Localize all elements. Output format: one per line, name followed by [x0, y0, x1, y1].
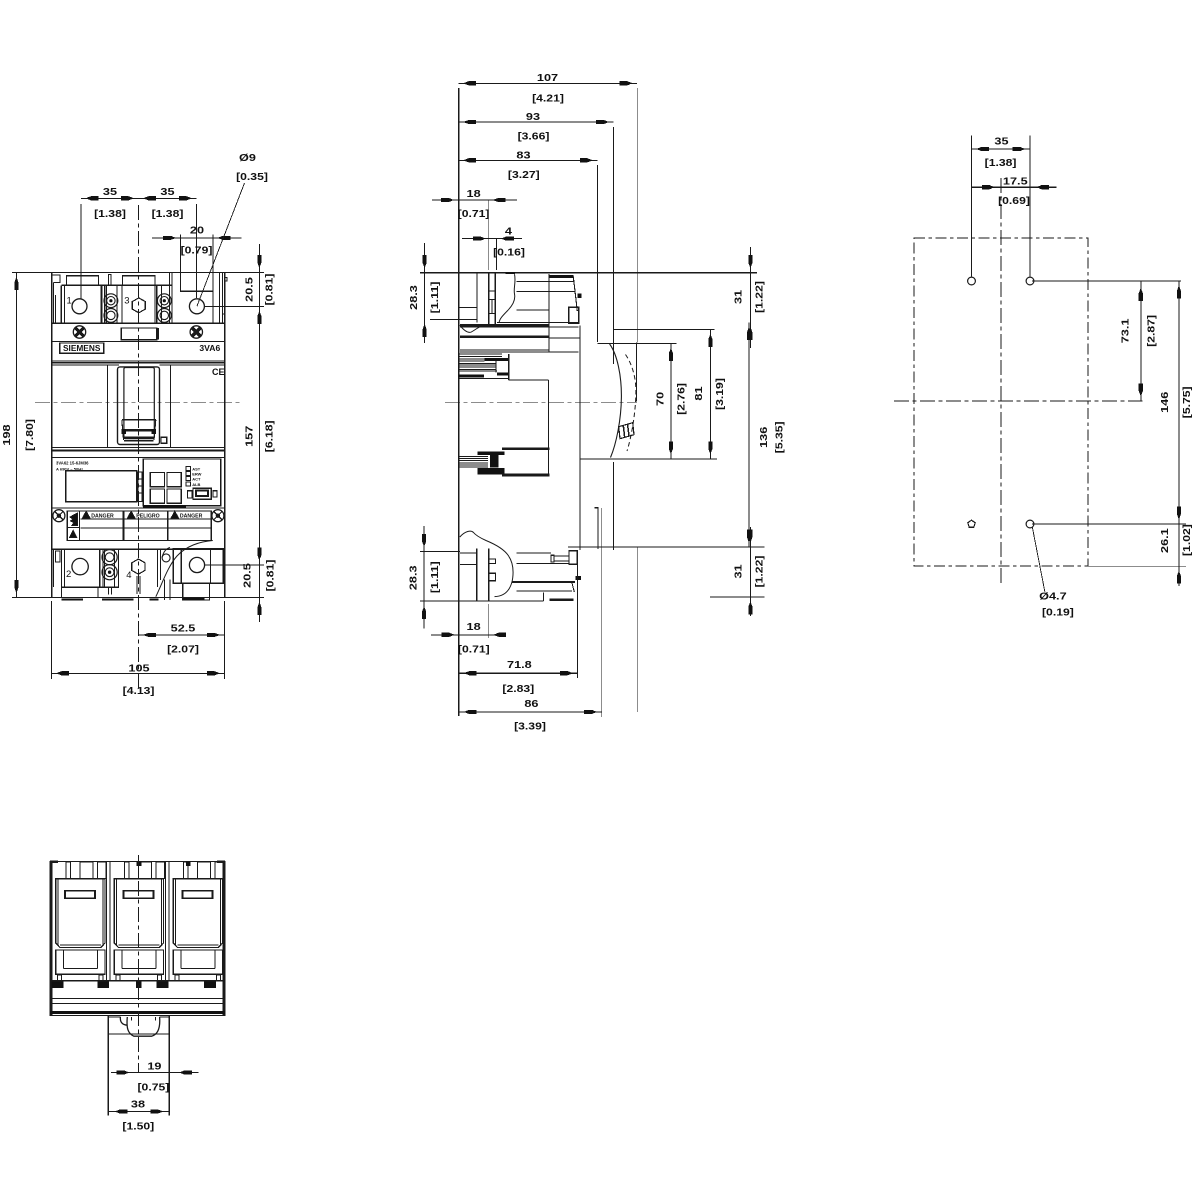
svg-text:[1.22]: [1.22]	[754, 556, 765, 588]
svg-text:35: 35	[160, 187, 175, 198]
svg-text:107: 107	[537, 73, 559, 84]
svg-text:136: 136	[759, 426, 770, 448]
svg-text:[1.38]: [1.38]	[94, 209, 126, 220]
svg-text:198: 198	[2, 424, 13, 446]
svg-text:38: 38	[131, 1099, 146, 1110]
svg-text:DANGER: DANGER	[91, 513, 114, 519]
svg-text:[0.71]: [0.71]	[458, 644, 490, 655]
svg-text:17.5: 17.5	[1003, 176, 1028, 187]
svg-text:[7.80]: [7.80]	[25, 419, 36, 451]
svg-text:157: 157	[245, 425, 256, 447]
svg-text:[5.35]: [5.35]	[774, 421, 785, 453]
svg-text:[1.11]: [1.11]	[430, 282, 441, 314]
svg-text:20: 20	[190, 226, 205, 237]
svg-text:Ø9: Ø9	[239, 153, 256, 164]
svg-text:[1.38]: [1.38]	[985, 158, 1017, 169]
svg-text:4: 4	[126, 570, 131, 581]
svg-text:83: 83	[516, 151, 531, 162]
svg-text:[3.66]: [3.66]	[518, 132, 550, 143]
svg-text:93: 93	[526, 112, 541, 123]
svg-text:[5.75]: [5.75]	[1182, 386, 1193, 418]
svg-text:31: 31	[733, 564, 744, 579]
svg-text:[1.50]: [1.50]	[122, 1121, 154, 1132]
svg-text:35: 35	[103, 187, 118, 198]
svg-text:81: 81	[694, 386, 705, 401]
svg-text:[1.38]: [1.38]	[152, 209, 184, 220]
svg-text:18: 18	[467, 622, 482, 633]
svg-text:[3.27]: [3.27]	[508, 170, 540, 181]
svg-text:SIEMENS: SIEMENS	[63, 343, 101, 353]
svg-text:[4.21]: [4.21]	[532, 93, 564, 104]
svg-text:86: 86	[524, 699, 539, 710]
svg-text:[0.16]: [0.16]	[493, 248, 525, 259]
svg-text:[2.83]: [2.83]	[502, 684, 534, 695]
svg-text:[2.76]: [2.76]	[677, 383, 688, 415]
svg-text:[4.13]: [4.13]	[123, 686, 155, 697]
svg-text:[2.87]: [2.87]	[1146, 315, 1157, 347]
svg-text:AST: AST	[192, 466, 201, 471]
svg-text:20.5: 20.5	[245, 277, 256, 302]
svg-text:[0.69]: [0.69]	[998, 196, 1030, 207]
svg-text:[0.35]: [0.35]	[236, 172, 268, 183]
svg-text:18: 18	[467, 189, 482, 200]
svg-text:2: 2	[66, 569, 71, 580]
svg-text:[1.11]: [1.11]	[430, 561, 441, 593]
svg-text:28.3: 28.3	[409, 565, 420, 590]
svg-text:20.5: 20.5	[243, 563, 254, 588]
svg-text:Ø4.7: Ø4.7	[1039, 592, 1067, 603]
svg-text:[1.02]: [1.02]	[1182, 524, 1193, 556]
svg-text:ACT: ACT	[192, 477, 201, 482]
svg-text:146: 146	[1160, 391, 1171, 413]
svg-text:[2.07]: [2.07]	[167, 644, 199, 655]
svg-text:DANGER: DANGER	[180, 513, 203, 519]
svg-text:19: 19	[147, 1061, 162, 1072]
svg-text:31: 31	[733, 289, 744, 304]
svg-text:ALB: ALB	[192, 482, 200, 487]
svg-text:4: 4	[505, 226, 513, 237]
svg-text:28.3: 28.3	[409, 285, 420, 310]
svg-text:[0.79]: [0.79]	[181, 246, 213, 257]
svg-text:3: 3	[124, 296, 129, 307]
svg-text:105: 105	[128, 664, 150, 675]
svg-text:PELIGRO: PELIGRO	[136, 513, 159, 519]
svg-text:3VA6: 3VA6	[199, 343, 220, 353]
svg-text:[0.19]: [0.19]	[1042, 608, 1074, 619]
svg-text:[0.81]: [0.81]	[265, 274, 276, 306]
svg-text:1: 1	[67, 296, 72, 307]
svg-text:[0.81]: [0.81]	[266, 560, 277, 592]
svg-text:26.1: 26.1	[1160, 528, 1171, 553]
svg-text:35: 35	[994, 136, 1009, 147]
svg-text:[1.22]: [1.22]	[754, 281, 765, 313]
svg-text:[0.75]: [0.75]	[138, 1082, 170, 1093]
svg-text:CE: CE	[212, 367, 225, 377]
svg-text:[3.39]: [3.39]	[514, 722, 546, 733]
svg-text:[3.19]: [3.19]	[715, 378, 726, 410]
svg-text:71.8: 71.8	[507, 660, 532, 671]
svg-text:70: 70	[655, 391, 666, 406]
svg-text:3VA62 15-6JM36: 3VA62 15-6JM36	[56, 461, 89, 466]
svg-text:52.5: 52.5	[171, 623, 196, 634]
svg-text:73.1: 73.1	[1120, 318, 1131, 343]
svg-text:[0.71]: [0.71]	[458, 209, 490, 220]
svg-text:[6.18]: [6.18]	[265, 420, 276, 452]
